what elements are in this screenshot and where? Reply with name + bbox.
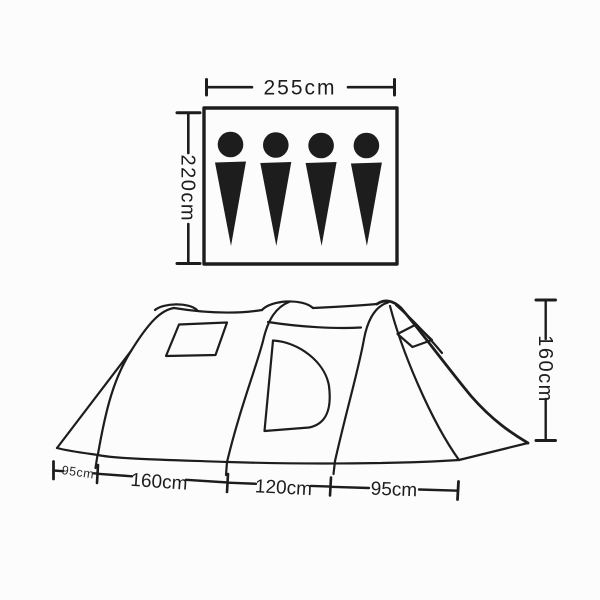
person-icon: [306, 133, 337, 246]
person-head: [354, 133, 380, 159]
base-segment-label-3: 95cm: [370, 479, 417, 502]
person-icon: [215, 132, 246, 246]
person-head: [308, 133, 334, 159]
person-body: [260, 162, 291, 246]
tent-side-view: [54, 300, 556, 500]
tent-roof-line-rear: [313, 304, 377, 308]
diagram-canvas: 255cm 220cm: [0, 0, 600, 600]
tent-rear-arch: [335, 303, 388, 462]
base-segment-label-2: 120cm: [254, 476, 312, 500]
ground-tick: [226, 462, 227, 475]
person-body: [306, 162, 337, 246]
person-body: [351, 163, 382, 247]
dimension-line: [228, 483, 256, 484]
person-icon: [351, 133, 382, 246]
person-body: [215, 162, 246, 247]
tent-guy-line: [57, 351, 131, 448]
height-dimension-label: 160cm: [534, 335, 556, 403]
width-dimension-label: 255cm: [263, 77, 336, 100]
tent-door: [265, 341, 330, 432]
dimension-line: [186, 480, 228, 483]
tent-rear-edge: [377, 301, 528, 443]
depth-dimension-label: 220cm: [177, 155, 199, 223]
person-head: [263, 132, 289, 158]
dimension-line: [98, 474, 132, 477]
tent-front-window: [166, 323, 227, 357]
dimension-line: [419, 490, 458, 491]
tent-ground-line: [57, 448, 459, 463]
base-segment-label-1: 160cm: [130, 470, 188, 495]
tent-middle-arch: [227, 302, 290, 463]
base-segment-label-0: 95cm: [61, 463, 95, 481]
person-head: [218, 132, 244, 158]
tent-dimensions-diagram: 255cm 220cm: [0, 0, 600, 600]
tent-rear-ground-edge: [459, 443, 528, 460]
tent-rear-face-edge: [390, 306, 459, 460]
person-icon: [260, 132, 291, 246]
tent-seam-line: [268, 322, 361, 328]
dimension-line: [331, 487, 370, 488]
capacity-icons: [215, 132, 382, 246]
dimension-line: [311, 486, 331, 487]
tent-roof-line: [174, 308, 262, 313]
ground-tick: [334, 461, 336, 474]
